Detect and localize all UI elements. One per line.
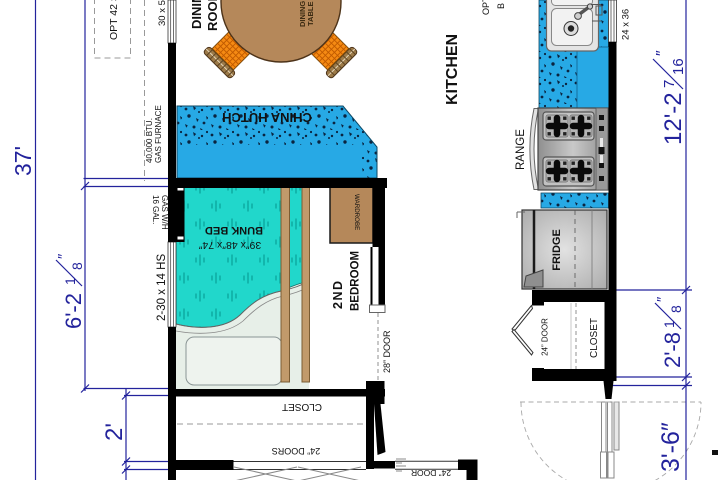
svg-text:24” DOOR: 24” DOOR: [541, 318, 550, 356]
svg-text:24” DOOR: 24” DOOR: [411, 468, 451, 478]
svg-text:CLOSET: CLOSET: [589, 318, 600, 358]
svg-text:BUNK BED: BUNK BED: [205, 224, 263, 236]
svg-text:GAS W/H: GAS W/H: [160, 195, 169, 230]
svg-text:16 GAL.: 16 GAL.: [151, 195, 160, 224]
svg-text:1: 1: [661, 320, 677, 328]
svg-text:BEDROOM: BEDROOM: [350, 251, 362, 311]
svg-text:37': 37': [10, 146, 36, 176]
svg-text:KITCHEN: KITCHEN: [444, 34, 461, 105]
svg-text:2'-8: 2'-8: [660, 332, 685, 368]
svg-text:28” DOOR: 28” DOOR: [382, 330, 392, 373]
svg-text:1: 1: [62, 277, 78, 285]
svg-text:CLOSET: CLOSET: [282, 401, 322, 412]
svg-text:16: 16: [670, 58, 687, 75]
svg-text:OPT: OPT: [481, 0, 491, 15]
svg-text:24 x 36: 24 x 36: [621, 9, 632, 40]
svg-text:″: ″: [55, 253, 72, 259]
svg-text:″: ″: [654, 296, 671, 302]
svg-text:39″x 48″x 74″: 39″x 48″x 74″: [198, 239, 261, 251]
svg-text:12'-2: 12'-2: [660, 92, 687, 145]
svg-text:24” DOORS: 24” DOORS: [272, 446, 321, 456]
svg-text:ROOM: ROOM: [205, 0, 220, 31]
svg-text:GAS FURNACE: GAS FURNACE: [154, 105, 163, 163]
svg-text:2ND: 2ND: [331, 279, 345, 309]
svg-text:OPT 42 S: OPT 42 S: [108, 0, 120, 40]
svg-text:6'-2: 6'-2: [61, 293, 86, 329]
svg-text:8: 8: [668, 305, 684, 313]
svg-text:WARDROBE: WARDROBE: [353, 194, 360, 230]
svg-text:″: ″: [654, 50, 671, 56]
svg-text:3'-6″: 3'-6″: [657, 422, 685, 472]
svg-text:40,000 BTU.: 40,000 BTU.: [145, 118, 154, 163]
svg-text:TABLE: TABLE: [306, 2, 315, 26]
svg-text:RANGE: RANGE: [515, 129, 527, 170]
svg-text:CHINA HUTCH: CHINA HUTCH: [222, 110, 312, 125]
svg-text:30 x 54: 30 x 54: [157, 0, 168, 26]
svg-text:8: 8: [69, 262, 85, 270]
svg-text:2': 2': [101, 423, 128, 441]
svg-text:FRIDGE: FRIDGE: [551, 229, 563, 271]
svg-text:2-30 x 14 HS: 2-30 x 14 HS: [156, 254, 168, 321]
svg-text:DINING: DINING: [189, 0, 204, 29]
svg-text:B: B: [496, 3, 506, 9]
